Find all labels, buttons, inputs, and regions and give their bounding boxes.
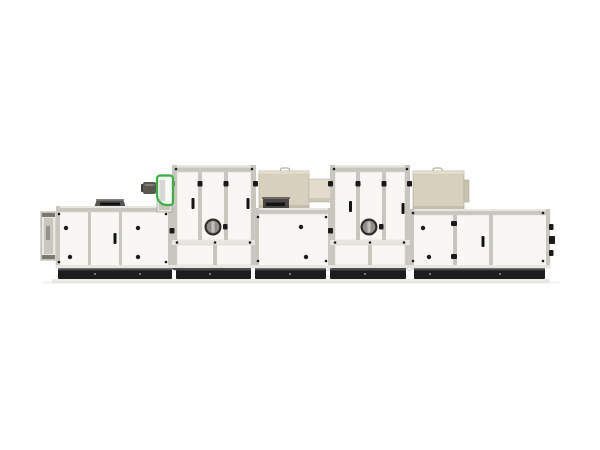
desiccant-box-left <box>259 168 331 210</box>
porthole-latch <box>223 224 228 230</box>
module-tall-left <box>170 165 259 268</box>
door-handle-slot <box>114 233 117 244</box>
module-right-low <box>410 168 555 268</box>
panel-mullion <box>213 245 217 265</box>
panel-mullion <box>88 212 91 268</box>
bottom-rail <box>410 265 550 268</box>
frame-post <box>56 206 60 268</box>
frame-post <box>168 206 172 268</box>
module-center-low <box>255 168 332 268</box>
side-fittings <box>549 224 555 256</box>
module-filter-left <box>56 199 172 268</box>
frame-post <box>410 209 414 268</box>
bottom-rail <box>255 265 332 268</box>
panel-mullion <box>489 215 493 268</box>
ground-shadow <box>42 279 560 284</box>
door-handle-slot <box>247 198 250 209</box>
intake-hood-lip <box>96 199 124 201</box>
louver-lip <box>262 197 290 199</box>
bottom-rail <box>330 265 410 268</box>
inlet-duct-flange <box>41 212 56 260</box>
panel-mullion <box>368 245 372 265</box>
fan-housing-shade <box>160 180 166 201</box>
bottom-rail <box>56 265 172 268</box>
flange-bottom-edge <box>42 255 55 259</box>
box-side-tab <box>464 180 469 202</box>
frame-post <box>330 165 335 268</box>
flange-top-edge <box>42 213 55 217</box>
flange-slot <box>46 226 50 240</box>
porthole-window <box>205 219 222 236</box>
bottom-rail <box>172 265 256 268</box>
door-handle-slot <box>402 203 405 214</box>
module-tall-right <box>328 165 412 268</box>
desiccant-box-right <box>413 168 469 212</box>
panel-face <box>410 215 550 268</box>
porthole-window <box>361 219 378 236</box>
door-handle-slot <box>349 201 352 212</box>
product-image-canvas <box>0 0 600 450</box>
fan-motor <box>143 182 156 194</box>
intake-hood-slot <box>100 203 120 206</box>
door-handle-slot <box>192 198 195 209</box>
ahu-product-illustration <box>0 0 600 450</box>
box-body <box>413 171 464 212</box>
panel-mullion <box>119 212 122 268</box>
door-handle-slot <box>482 236 485 247</box>
frame-post <box>405 165 410 268</box>
louver-slot <box>266 203 285 207</box>
porthole-latch <box>379 224 384 230</box>
panel-face <box>255 214 332 268</box>
